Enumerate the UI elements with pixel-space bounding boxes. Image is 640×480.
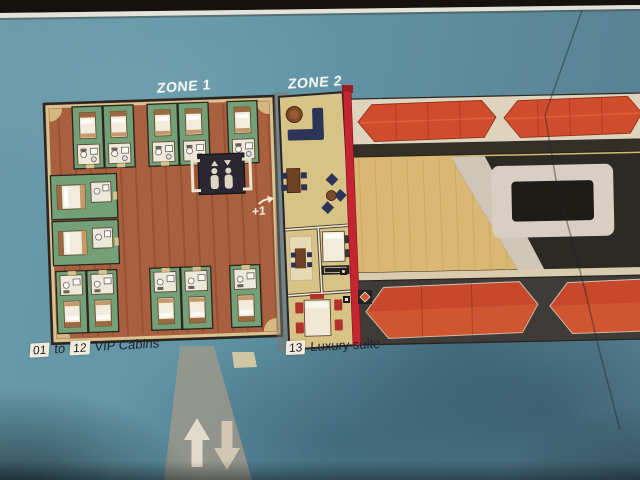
cabin-range-start-badge: 01: [30, 342, 50, 357]
chair: [291, 263, 296, 268]
dining-table: [287, 168, 301, 192]
vip-cabin: [103, 105, 135, 168]
vip-cabin: [147, 103, 179, 166]
vip-cabin: [72, 106, 104, 169]
study-table: [295, 248, 307, 268]
zone2-label: ZONE 2: [287, 72, 342, 91]
red-chair: [335, 319, 343, 330]
vip-cabin: [87, 270, 119, 333]
side-table: [326, 190, 336, 200]
dining-chair: [301, 184, 307, 190]
chair: [291, 253, 296, 258]
deck-plan-graphic: [0, 0, 640, 480]
elevator-people-icon: [192, 153, 251, 195]
sofa: [312, 108, 324, 140]
corridor-exit-patch: [232, 352, 257, 368]
vip-cabin: [50, 173, 117, 219]
red-chair: [295, 302, 303, 313]
dining-chair: [281, 185, 287, 191]
luxury-suite-label: Luxury suite: [310, 336, 381, 354]
pillow: [306, 302, 328, 309]
chair: [307, 262, 312, 267]
red-bench: [310, 294, 324, 299]
chair: [307, 252, 312, 257]
vip-cabin: [230, 265, 262, 328]
dining-chair: [301, 172, 307, 178]
zone1-cabin-block: [44, 96, 282, 344]
lifeboat-deck: [350, 93, 640, 345]
range-connector: to: [54, 341, 66, 357]
dining-chair: [281, 173, 287, 179]
vip-cabin: [181, 266, 213, 329]
vip-cabin: [56, 271, 88, 334]
lifeboat-top-2: [504, 96, 640, 138]
red-chair: [296, 322, 304, 333]
deck-direction-label: +1: [252, 203, 266, 218]
deck-plan-sign-photo: ZONE 1 ZONE 2 +1 01 to 12 VIP Cabins 13 …: [0, 0, 640, 480]
vip-cabin: [52, 219, 119, 265]
pillow: [324, 233, 342, 238]
cabin-range-end-badge: 12: [70, 340, 90, 355]
vip-cabin: [150, 267, 182, 330]
suite-number-badge: 13: [286, 340, 306, 355]
red-chair: [334, 299, 342, 310]
skylight-opening: [511, 180, 594, 222]
